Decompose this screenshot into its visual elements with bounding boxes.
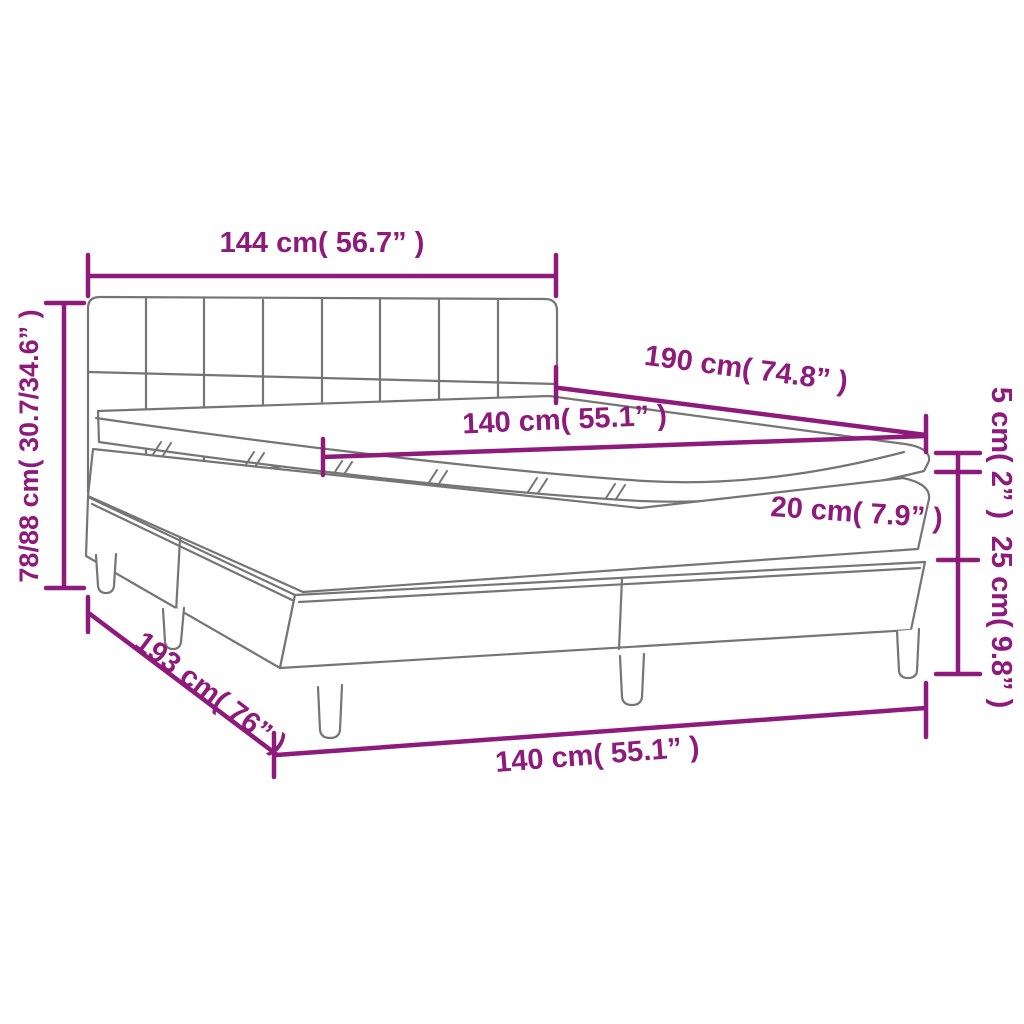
dim-total-height-label: 78/88 cm( 30.7/34.6” ) bbox=[14, 309, 44, 582]
leg bbox=[318, 685, 342, 738]
dim-headboard-width bbox=[88, 255, 556, 296]
dim-right-heights bbox=[936, 453, 980, 674]
dim-total-height bbox=[46, 303, 84, 588]
leg bbox=[897, 629, 919, 678]
dim-base-height-label: 25 cm( 9.8” ) bbox=[985, 536, 1017, 708]
leg bbox=[96, 554, 116, 593]
dim-bed-length-label: 190 cm( 74.8” ) bbox=[643, 340, 850, 398]
dim-topper-height-label: 5 cm( 2” ) bbox=[985, 387, 1017, 519]
dim-headboard-width-label: 144 cm( 56.7” ) bbox=[220, 227, 425, 259]
diagram-canvas: 144 cm( 56.7” ) 190 cm( 74.8” ) 140 cm( … bbox=[0, 0, 1024, 1024]
leg bbox=[620, 654, 644, 705]
bed-dimension-diagram: 144 cm( 56.7” ) 190 cm( 74.8” ) 140 cm( … bbox=[0, 0, 1024, 1024]
